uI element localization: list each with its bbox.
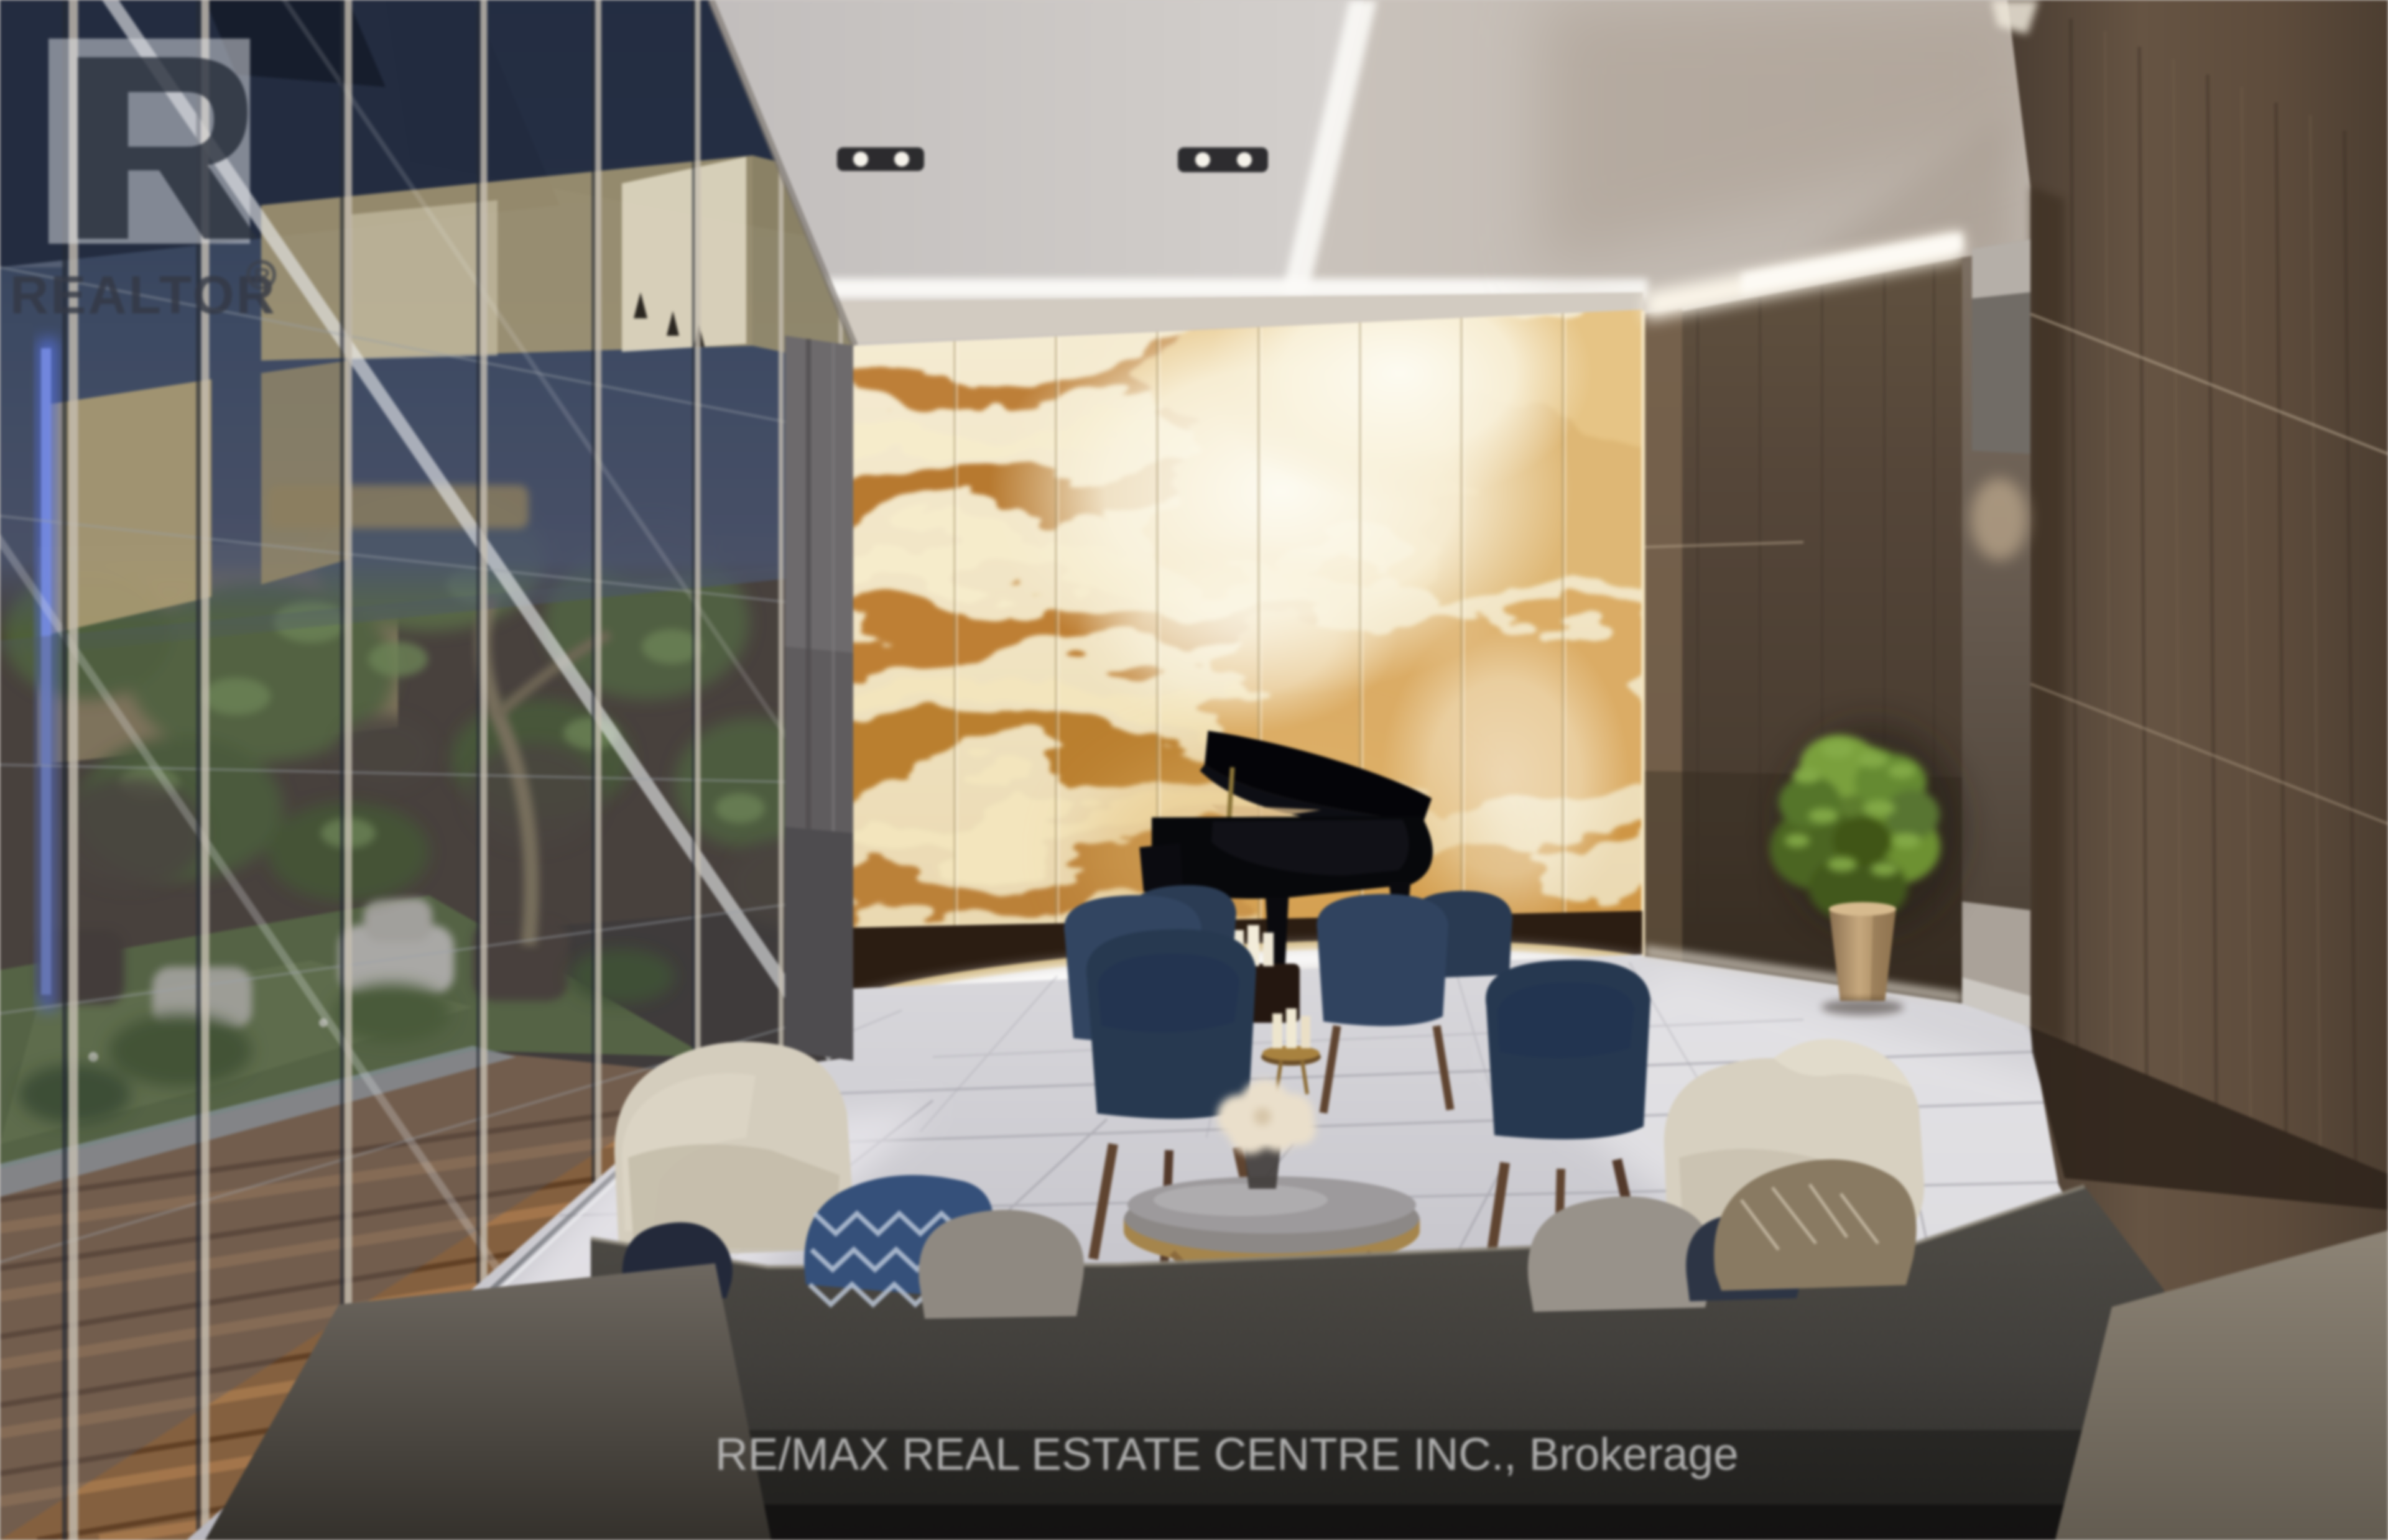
- svg-text:REALTOR: REALTOR: [10, 265, 277, 325]
- svg-text:R: R: [254, 264, 271, 289]
- svg-text:RE/MAX REAL ESTATE CENTRE INC.: RE/MAX REAL ESTATE CENTRE INC., Brokerag…: [715, 1429, 1739, 1480]
